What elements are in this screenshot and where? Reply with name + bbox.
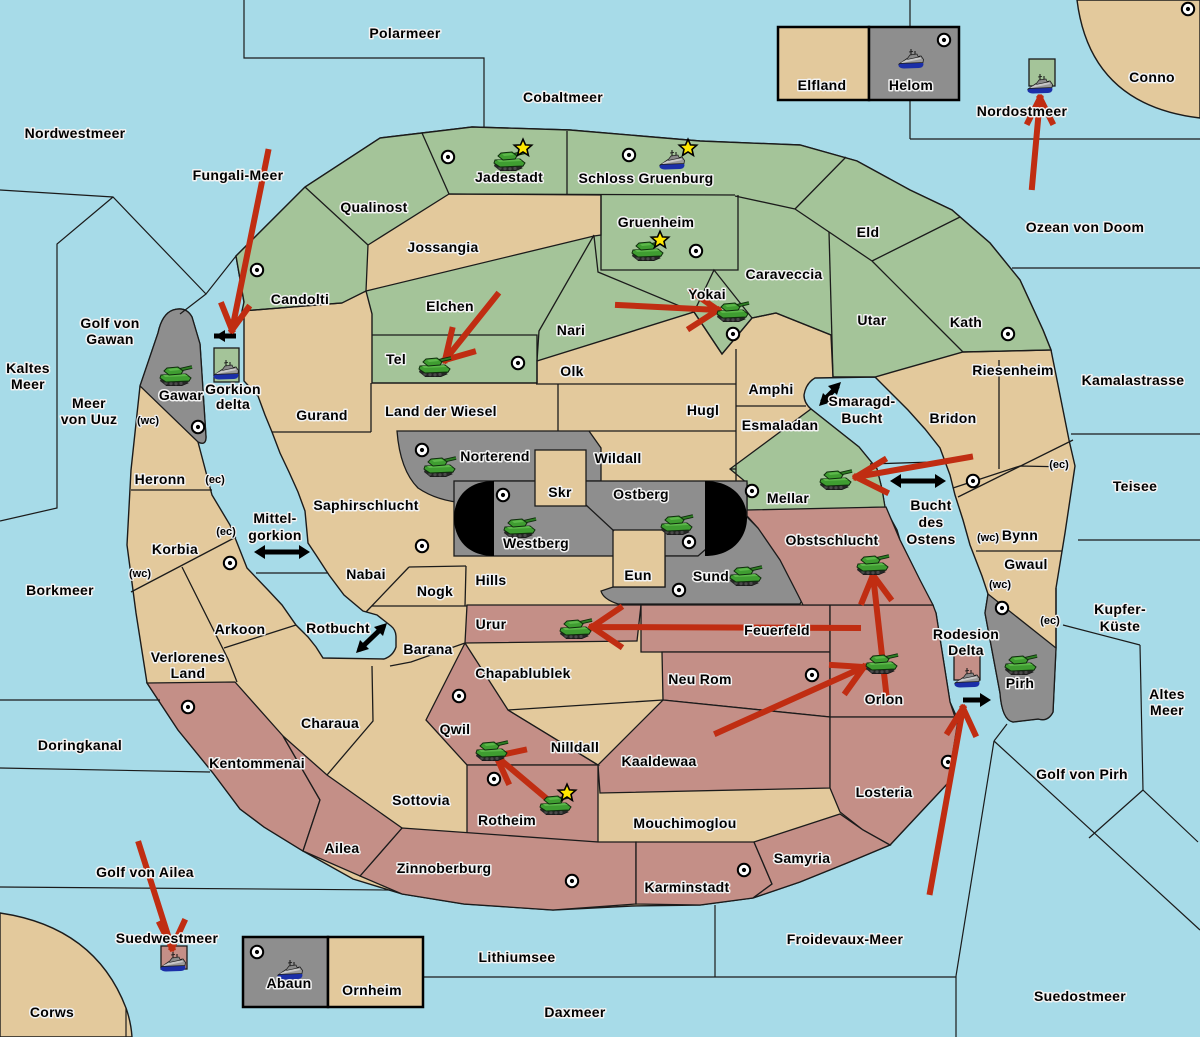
svg-text:Korbia: Korbia bbox=[152, 541, 198, 557]
svg-text:Rotheim: Rotheim bbox=[478, 812, 536, 828]
svg-text:Urur: Urur bbox=[476, 616, 507, 632]
svg-text:Bucht: Bucht bbox=[841, 410, 882, 426]
svg-text:Obstschlucht: Obstschlucht bbox=[785, 532, 878, 548]
svg-text:Ostens: Ostens bbox=[906, 531, 955, 547]
svg-text:Bynn: Bynn bbox=[1002, 527, 1038, 543]
svg-text:Nogk: Nogk bbox=[417, 583, 453, 599]
svg-text:Suedwestmeer: Suedwestmeer bbox=[116, 930, 219, 946]
svg-text:Norterend: Norterend bbox=[460, 448, 530, 464]
svg-text:Tel: Tel bbox=[386, 351, 406, 367]
svg-text:gorkion: gorkion bbox=[248, 527, 301, 543]
svg-text:Charaua: Charaua bbox=[301, 715, 359, 731]
svg-text:Suedostmeer: Suedostmeer bbox=[1034, 988, 1126, 1004]
svg-text:Nabai: Nabai bbox=[346, 566, 386, 582]
svg-text:Meer: Meer bbox=[72, 395, 106, 411]
svg-text:Gruenheim: Gruenheim bbox=[618, 214, 695, 230]
svg-text:Helom: Helom bbox=[889, 77, 933, 93]
svg-text:Jadestadt: Jadestadt bbox=[475, 169, 543, 185]
svg-text:von Uuz: von Uuz bbox=[61, 411, 118, 427]
svg-text:Teisee: Teisee bbox=[1113, 478, 1157, 494]
svg-text:Bridon: Bridon bbox=[930, 410, 977, 426]
svg-text:(wc): (wc) bbox=[129, 568, 151, 580]
svg-text:Esmaladan: Esmaladan bbox=[742, 417, 819, 433]
svg-text:(ec): (ec) bbox=[1040, 615, 1060, 627]
svg-text:Losteria: Losteria bbox=[856, 784, 913, 800]
svg-text:Kupfer-: Kupfer- bbox=[1094, 601, 1146, 617]
svg-text:Mittel-: Mittel- bbox=[253, 510, 296, 526]
svg-text:Sottovia: Sottovia bbox=[392, 792, 450, 808]
svg-text:Orlon: Orlon bbox=[865, 691, 904, 707]
svg-text:Froidevaux-Meer: Froidevaux-Meer bbox=[787, 931, 904, 947]
svg-text:Gurand: Gurand bbox=[296, 407, 348, 423]
svg-text:Altes: Altes bbox=[1149, 686, 1185, 702]
svg-text:Arkoon: Arkoon bbox=[215, 621, 266, 637]
svg-text:Samyria: Samyria bbox=[774, 850, 831, 866]
svg-text:des: des bbox=[918, 514, 943, 530]
svg-text:Jossangia: Jossangia bbox=[407, 239, 478, 255]
svg-text:Kentommenai: Kentommenai bbox=[209, 755, 305, 771]
svg-text:Eld: Eld bbox=[857, 224, 880, 240]
svg-text:Utar: Utar bbox=[857, 312, 886, 328]
svg-text:Barana: Barana bbox=[403, 641, 452, 657]
svg-text:Golf von Pirh: Golf von Pirh bbox=[1036, 766, 1128, 782]
svg-text:Riesenheim: Riesenheim bbox=[972, 362, 1054, 378]
svg-text:Daxmeer: Daxmeer bbox=[544, 1004, 606, 1020]
svg-text:Saphirschlucht: Saphirschlucht bbox=[313, 497, 418, 513]
svg-text:Hugl: Hugl bbox=[687, 402, 719, 418]
svg-text:Yokai: Yokai bbox=[688, 286, 726, 302]
svg-text:Rodesion: Rodesion bbox=[933, 626, 999, 642]
svg-text:Golf von: Golf von bbox=[80, 315, 139, 331]
svg-text:Wildall: Wildall bbox=[594, 450, 641, 466]
svg-text:(ec): (ec) bbox=[205, 474, 225, 486]
svg-text:(ec): (ec) bbox=[216, 526, 236, 538]
svg-text:Land der Wiesel: Land der Wiesel bbox=[385, 403, 497, 419]
svg-text:Pirh: Pirh bbox=[1006, 675, 1034, 691]
svg-text:Fungali-Meer: Fungali-Meer bbox=[193, 167, 284, 183]
svg-text:Kamalastrasse: Kamalastrasse bbox=[1082, 372, 1185, 388]
svg-text:(wc): (wc) bbox=[977, 532, 999, 544]
svg-text:Corws: Corws bbox=[30, 1004, 74, 1020]
svg-text:Amphi: Amphi bbox=[748, 381, 793, 397]
svg-text:Conno: Conno bbox=[1129, 69, 1175, 85]
svg-text:Meer: Meer bbox=[1150, 702, 1184, 718]
svg-text:Kaaldewaa: Kaaldewaa bbox=[621, 753, 696, 769]
svg-text:Sund: Sund bbox=[693, 568, 729, 584]
svg-text:Rotbucht: Rotbucht bbox=[306, 620, 370, 636]
svg-text:Ostberg: Ostberg bbox=[613, 486, 669, 502]
svg-text:Bucht: Bucht bbox=[910, 497, 951, 513]
svg-text:Gawan: Gawan bbox=[86, 331, 133, 347]
svg-text:Kath: Kath bbox=[950, 314, 982, 330]
svg-text:Elfland: Elfland bbox=[798, 77, 847, 93]
svg-text:Westberg: Westberg bbox=[503, 535, 569, 551]
svg-text:Polarmeer: Polarmeer bbox=[369, 25, 440, 41]
svg-text:Nordwestmeer: Nordwestmeer bbox=[25, 125, 126, 141]
svg-text:Ornheim: Ornheim bbox=[342, 982, 402, 998]
svg-text:Gorkion: Gorkion bbox=[205, 381, 261, 397]
svg-text:Chapablublek: Chapablublek bbox=[475, 665, 570, 681]
svg-text:Hills: Hills bbox=[475, 572, 506, 588]
svg-text:Eun: Eun bbox=[624, 567, 651, 583]
svg-text:Cobaltmeer: Cobaltmeer bbox=[523, 89, 603, 105]
svg-text:Borkmeer: Borkmeer bbox=[26, 582, 94, 598]
svg-text:Karminstadt: Karminstadt bbox=[645, 879, 730, 895]
svg-text:Caraveccia: Caraveccia bbox=[746, 266, 823, 282]
svg-text:Nari: Nari bbox=[557, 322, 585, 338]
svg-text:Heronn: Heronn bbox=[135, 471, 186, 487]
svg-text:Qualinost: Qualinost bbox=[340, 199, 407, 215]
svg-text:Smaragd-: Smaragd- bbox=[829, 393, 896, 409]
svg-text:Meer: Meer bbox=[11, 376, 45, 392]
svg-text:Candolti: Candolti bbox=[271, 291, 329, 307]
svg-text:Ozean von Doom: Ozean von Doom bbox=[1026, 219, 1145, 235]
svg-text:Olk: Olk bbox=[560, 363, 583, 379]
svg-text:Ailea: Ailea bbox=[325, 840, 360, 856]
svg-text:delta: delta bbox=[216, 396, 250, 412]
svg-text:Mouchimoglou: Mouchimoglou bbox=[633, 815, 736, 831]
svg-text:Gawar: Gawar bbox=[159, 387, 204, 403]
svg-text:Gwaul: Gwaul bbox=[1004, 556, 1048, 572]
svg-text:Abaun: Abaun bbox=[266, 975, 311, 991]
svg-text:Zinnoberburg: Zinnoberburg bbox=[397, 860, 492, 876]
svg-text:Feuerfeld: Feuerfeld bbox=[744, 622, 810, 638]
svg-text:Mellar: Mellar bbox=[767, 490, 810, 506]
svg-text:Land: Land bbox=[171, 665, 206, 681]
svg-text:Kaltes: Kaltes bbox=[6, 360, 50, 376]
svg-text:Lithiumsee: Lithiumsee bbox=[479, 949, 556, 965]
svg-text:Neu Rom: Neu Rom bbox=[668, 671, 732, 687]
svg-text:Nordostmeer: Nordostmeer bbox=[977, 103, 1068, 119]
svg-text:Verlorenes: Verlorenes bbox=[151, 649, 226, 665]
svg-text:Golf von Ailea: Golf von Ailea bbox=[96, 864, 194, 880]
svg-text:Elchen: Elchen bbox=[426, 298, 474, 314]
svg-text:Schloss Gruenburg: Schloss Gruenburg bbox=[578, 170, 713, 186]
svg-text:Skr: Skr bbox=[548, 484, 572, 500]
svg-text:Küste: Küste bbox=[1100, 618, 1140, 634]
svg-text:Nilldall: Nilldall bbox=[551, 739, 599, 755]
svg-text:(ec): (ec) bbox=[1049, 459, 1069, 471]
svg-text:(wc): (wc) bbox=[989, 579, 1011, 591]
svg-text:Qwil: Qwil bbox=[440, 721, 471, 737]
svg-text:Delta: Delta bbox=[948, 642, 984, 658]
svg-text:Doringkanal: Doringkanal bbox=[38, 737, 122, 753]
svg-text:(wc): (wc) bbox=[137, 415, 159, 427]
